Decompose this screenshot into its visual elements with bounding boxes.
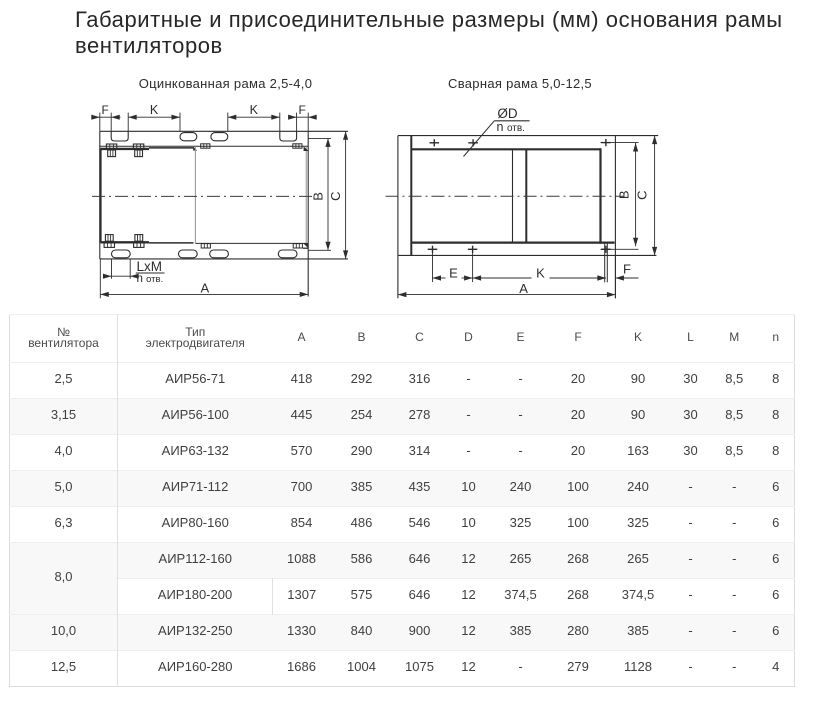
svg-text:K: K <box>250 103 259 117</box>
svg-text:ØD: ØD <box>497 106 518 121</box>
svg-text:A: A <box>519 281 528 296</box>
svg-text:Оцинкованная рама 2,5-4,0: Оцинкованная рама 2,5-4,0 <box>139 76 313 91</box>
svg-text:C: C <box>328 192 343 201</box>
svg-text:F: F <box>102 103 109 117</box>
svg-text:B: B <box>616 190 631 199</box>
svg-text:F: F <box>623 262 631 277</box>
svg-text:K: K <box>536 266 545 281</box>
svg-text:E: E <box>449 266 458 281</box>
svg-text:A: A <box>200 281 209 296</box>
svg-text:n отв.: n отв. <box>497 120 525 134</box>
svg-text:n отв.: n отв. <box>137 273 164 285</box>
svg-text:C: C <box>634 191 649 200</box>
svg-text:Сварная рама 5,0-12,5: Сварная рама 5,0-12,5 <box>448 76 592 91</box>
svg-text:LxM: LxM <box>137 259 163 274</box>
svg-text:F: F <box>299 103 306 117</box>
svg-text:K: K <box>150 103 159 117</box>
svg-text:B: B <box>311 192 326 201</box>
